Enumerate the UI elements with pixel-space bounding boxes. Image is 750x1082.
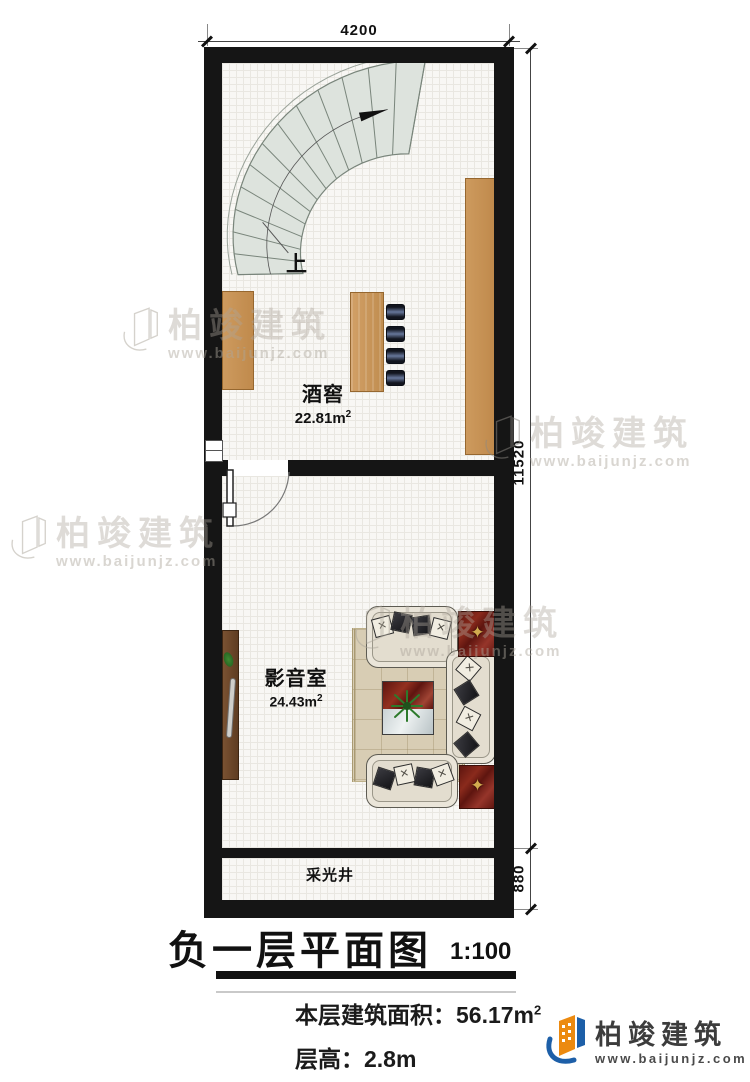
dim-right-line [530,48,531,910]
watermark-name: 柏竣建筑 [56,506,220,555]
coffee-table-top [383,682,433,709]
chair [386,304,405,320]
pillow [390,611,413,634]
room-label-media: 影音室 24.43m2 [236,662,356,710]
chair [386,370,405,386]
dim-right-total-value: 11520 [511,438,528,488]
brand-name: 柏竣建筑 [595,1013,747,1052]
room-name: 影音室 [236,662,356,691]
watermark-building-icon [8,512,48,564]
room-name: 采光井 [270,864,390,885]
floor-area-value: 56.17m [456,1002,534,1028]
pillow [453,679,479,705]
stair-up-label: 上 [286,248,307,278]
brand-url: www.baijunjz.com [595,1051,747,1066]
watermark-url: www.baijunjz.com [530,453,694,470]
room-label-wine-cellar: 酒窖 22.81m2 [263,378,383,427]
wall-middle [288,460,514,476]
title-rule-thick [216,971,516,979]
dim-ext [514,848,538,849]
sofa-right [446,650,496,764]
dim-top-value: 4200 [204,22,514,39]
room-area: 24.43m2 [236,693,356,710]
floor-area-label: 本层建筑面积： [295,1002,456,1028]
watermark-text-block: 柏竣建筑 www.baijunjz.com [530,406,694,470]
chair [386,326,405,342]
wine-rack [465,178,495,455]
red-mat-top [458,611,497,657]
pillow [393,763,416,786]
window [205,440,223,462]
floor-height-line: 层高：2.8m [295,1040,416,1074]
coffee-table [382,681,434,735]
brand-logo: 柏竣建筑 www.baijunjz.com [544,1010,747,1068]
title-rule-thin [216,991,516,993]
coffee-table-mirror [383,709,433,734]
drawing-title: 负一层平面图 [150,918,450,976]
wall-left [204,47,222,918]
dim-ext [514,48,538,49]
room-name: 酒窖 [263,378,383,407]
room-label-lightwell: 采光井 [270,864,390,885]
wall-media-bottom [204,848,514,858]
dim-right-lightwell-value: 880 [511,859,528,899]
floor-height-value: 2.8m [364,1046,416,1072]
floor-area-line: 本层建筑面积：56.17m2 [295,996,541,1030]
pillow [455,655,482,682]
watermark-name: 柏竣建筑 [530,406,694,455]
pillow [456,706,482,732]
wall-bottom [204,900,514,918]
watermark: 柏竣建筑 www.baijunjz.com [8,506,220,570]
brand-text-block: 柏竣建筑 www.baijunjz.com [595,1013,747,1066]
pillow [453,731,480,758]
watermark-url: www.baijunjz.com [56,553,220,570]
watermark-building-icon [120,304,160,356]
red-mat-bottom [459,765,496,809]
sofa-bottom [366,754,458,808]
dim-ext [514,909,538,910]
brand-building-icon [544,1010,588,1068]
watermark-text-block: 柏竣建筑 www.baijunjz.com [56,506,220,570]
room-area: 22.81m2 [263,409,383,427]
floorplan-page: 酒窖 22.81m2 影音室 24.43m2 采光井 上 4200 11520 … [0,0,750,1082]
pillow [430,762,454,786]
wine-cellar-cabinet [222,291,254,390]
sofa-top [366,606,458,668]
dim-top-line [198,41,520,42]
floor-height-label: 层高： [295,1046,364,1072]
pillow [429,617,452,640]
tasting-table [350,292,384,392]
chair [386,348,405,364]
wall-middle-stub [204,460,228,476]
drawing-scale: 1:100 [450,938,511,966]
wall-top [204,47,514,63]
